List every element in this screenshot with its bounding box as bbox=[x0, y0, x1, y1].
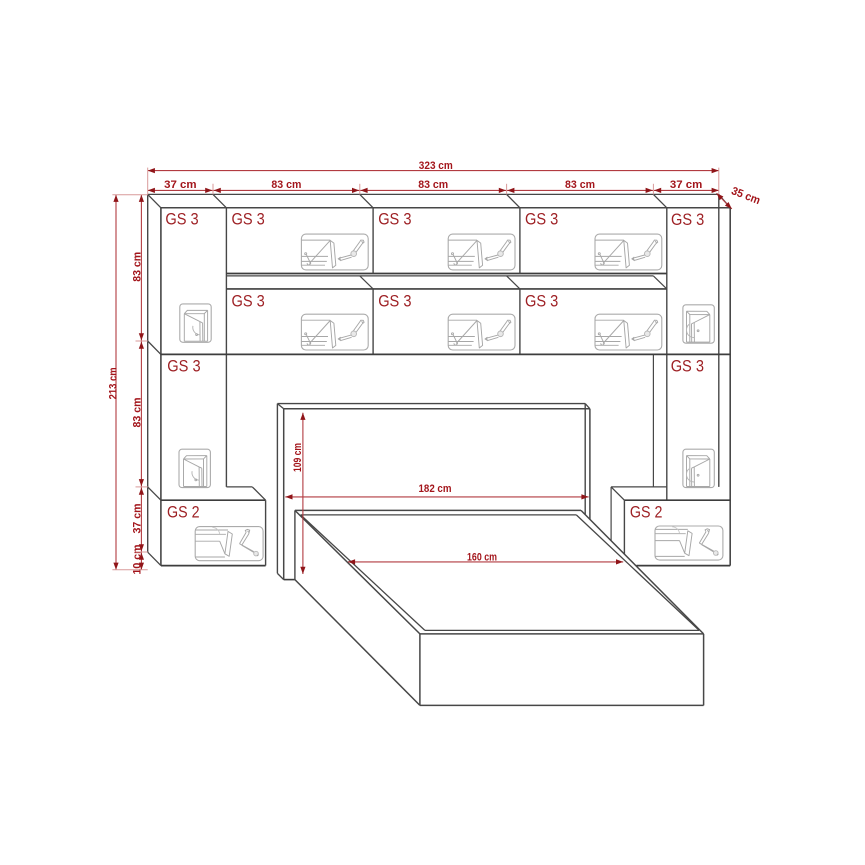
svg-text:37 cm: 37 cm bbox=[132, 504, 144, 534]
svg-text:109 cm: 109 cm bbox=[292, 443, 304, 472]
svg-text:323 cm: 323 cm bbox=[419, 160, 453, 172]
svg-text:213 cm: 213 cm bbox=[107, 367, 119, 399]
svg-text:83 cm: 83 cm bbox=[132, 398, 144, 428]
svg-text:83 cm: 83 cm bbox=[418, 179, 448, 191]
svg-text:GS 3: GS 3 bbox=[232, 293, 265, 311]
svg-text:GS 3: GS 3 bbox=[232, 211, 265, 229]
svg-text:GS 3: GS 3 bbox=[671, 358, 704, 376]
svg-text:GS 3: GS 3 bbox=[525, 211, 558, 229]
svg-text:GS 3: GS 3 bbox=[525, 293, 558, 311]
svg-text:GS 2: GS 2 bbox=[630, 504, 663, 522]
svg-text:GS 3: GS 3 bbox=[378, 211, 411, 229]
svg-text:160 cm: 160 cm bbox=[467, 551, 497, 563]
svg-text:83 cm: 83 cm bbox=[565, 179, 595, 191]
svg-text:37 cm: 37 cm bbox=[164, 179, 197, 191]
svg-text:GS 3: GS 3 bbox=[671, 211, 704, 229]
svg-text:37 cm: 37 cm bbox=[670, 179, 703, 191]
svg-text:83 cm: 83 cm bbox=[132, 252, 144, 282]
svg-text:GS 2: GS 2 bbox=[167, 504, 200, 522]
svg-text:GS 3: GS 3 bbox=[167, 358, 200, 376]
svg-text:182 cm: 182 cm bbox=[419, 483, 452, 495]
svg-text:GS 3: GS 3 bbox=[165, 211, 198, 229]
svg-text:GS 3: GS 3 bbox=[378, 293, 411, 311]
svg-text:83 cm: 83 cm bbox=[271, 179, 301, 191]
